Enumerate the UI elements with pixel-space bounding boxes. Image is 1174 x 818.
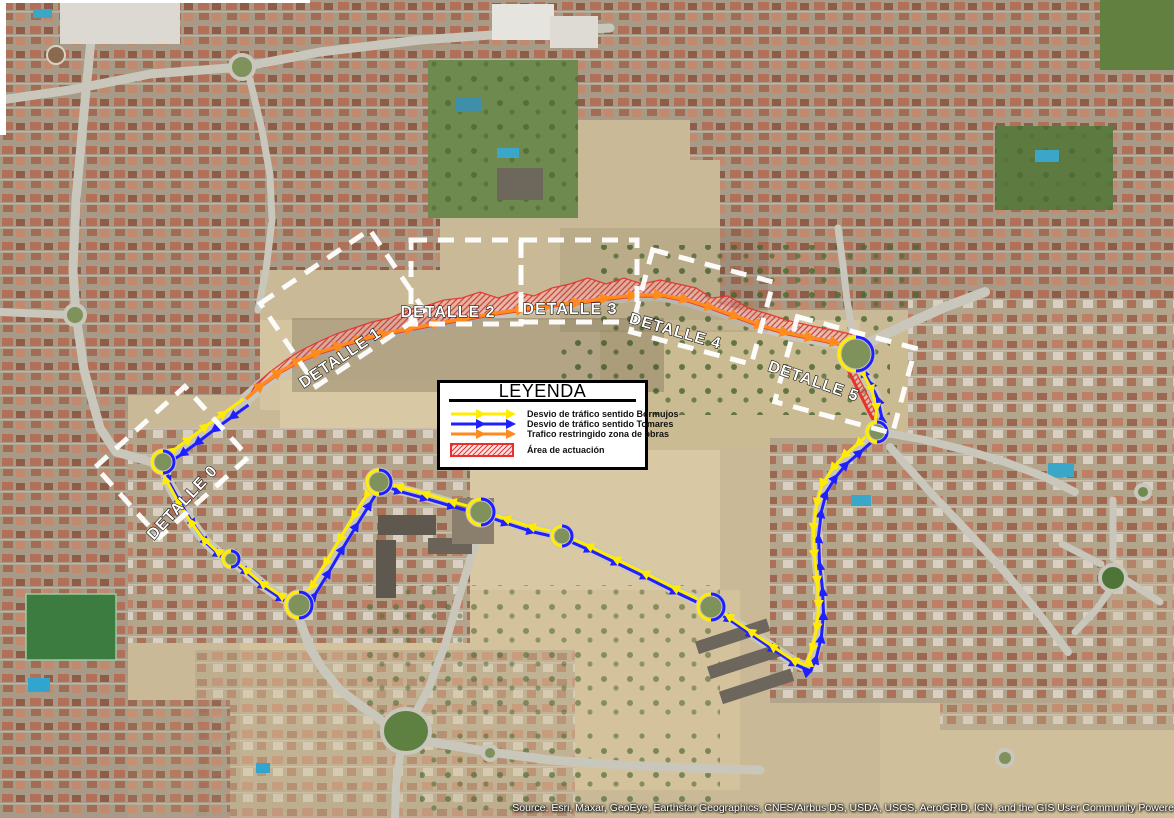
legend-item: Área de actuación bbox=[450, 444, 605, 456]
legend-item-label: Área de actuación bbox=[527, 445, 605, 455]
legend-title: LEYENDA bbox=[440, 383, 645, 399]
map-attribution: Source: Esri, Maxar, GeoEye, Earthstar G… bbox=[506, 802, 1174, 814]
detour-line-sample bbox=[450, 427, 516, 441]
work-area-swatch bbox=[450, 443, 516, 457]
detail-label: DETALLE 0 bbox=[144, 462, 221, 543]
legend-box: LEYENDA Desvio de tráfico sentido Bormuj… bbox=[437, 380, 648, 470]
detail-label: DETALLE 4 bbox=[627, 310, 723, 353]
detail-label: DETALLE 2 bbox=[401, 304, 496, 321]
legend-title-underline bbox=[449, 399, 636, 402]
detail-label: DETALLE 3 bbox=[523, 301, 618, 318]
legend-item-label: Trafico restringido zona de obras bbox=[527, 429, 669, 439]
map-canvas[interactable]: DETALLE 0DETALLE 1DETALLE 2DETALLE 3DETA… bbox=[0, 0, 1174, 818]
legend-item: Trafico restringido zona de obras bbox=[450, 428, 669, 440]
